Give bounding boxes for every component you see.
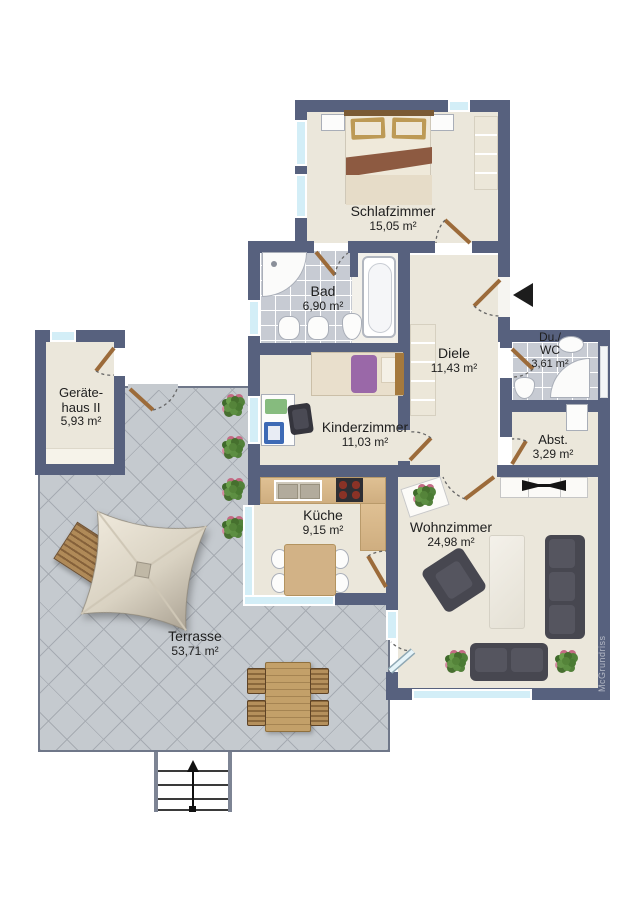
kueche-door xyxy=(368,556,386,587)
room-label-kueche: Küche 9,15 m² xyxy=(276,508,370,537)
entrance-door xyxy=(474,280,500,306)
room-name: Kinderzimmer xyxy=(300,420,430,436)
room-area: 11,43 m² xyxy=(408,362,500,376)
room-label-diele: Diele 11,43 m² xyxy=(408,346,500,375)
wohnzimmer-door xyxy=(465,477,494,499)
floorplan-canvas: Schlafzimmer 15,05 m² Bad 6,90 m² Diele … xyxy=(0,0,636,900)
stairs-arrow-icon xyxy=(187,760,199,772)
room-name: Terrasse xyxy=(130,629,260,645)
terrace-gate-door xyxy=(130,389,153,410)
room-area: 15,05 m² xyxy=(328,220,458,234)
geraetehaus-door xyxy=(96,348,114,371)
room-area: 6,90 m² xyxy=(278,300,368,314)
door-swing-arc xyxy=(443,477,465,499)
room-name: Bad xyxy=(278,284,368,300)
room-label-kinderzimmer: Kinderzimmer 11,03 m² xyxy=(300,420,430,449)
room-name: Wohnzimmer xyxy=(386,520,516,536)
room-area: 24,98 m² xyxy=(386,536,516,550)
room-label-terrasse: Terrasse 53,71 m² xyxy=(130,629,260,658)
bad-door xyxy=(316,252,335,275)
room-label-abst: Abst. 3,29 m² xyxy=(510,433,596,461)
room-area: 53,71 m² xyxy=(130,645,260,659)
room-label-duwc: Du./ WC 3,61 m² xyxy=(518,331,582,371)
door-swing-arc xyxy=(153,389,177,410)
door-swing-arc xyxy=(368,551,386,556)
watermark: McGrundriss xyxy=(597,600,610,692)
room-label-bad: Bad 6,90 m² xyxy=(278,284,368,313)
room-area: 3,29 m² xyxy=(510,448,596,462)
room-name: Küche xyxy=(276,508,370,524)
door-swing-arc xyxy=(335,253,348,275)
door-swing-arc xyxy=(474,306,499,316)
room-area: 9,15 m² xyxy=(276,524,370,538)
room-name: Geräte- haus II xyxy=(42,386,120,415)
room-name: Abst. xyxy=(510,433,596,448)
room-label-schlafzimmer: Schlafzimmer 15,05 m² xyxy=(328,204,458,233)
room-name: Du./ WC xyxy=(518,331,582,358)
room-name: Diele xyxy=(408,346,500,362)
terrace-glass-door xyxy=(390,651,413,671)
tv-icon xyxy=(536,484,552,487)
room-label-geraetehaus: Geräte- haus II 5,93 m² xyxy=(42,386,120,429)
room-name: Schlafzimmer xyxy=(328,204,458,220)
door-swing-arc xyxy=(96,371,114,375)
room-area: 5,93 m² xyxy=(42,415,120,429)
room-area: 11,03 m² xyxy=(300,436,430,450)
room-label-wohnzimmer: Wohnzimmer 24,98 m² xyxy=(386,520,516,549)
entrance-arrow-icon xyxy=(513,283,533,307)
room-area: 3,61 m² xyxy=(518,358,582,371)
stairs-arrow-icon xyxy=(189,806,196,812)
